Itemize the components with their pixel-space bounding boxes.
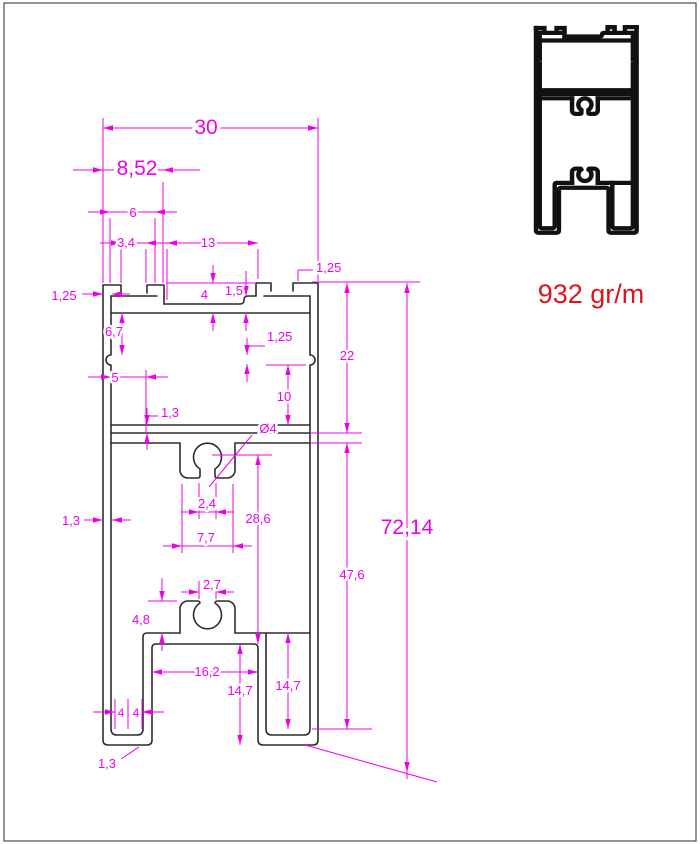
dimension-label: 4,8 bbox=[132, 612, 150, 627]
dimension-arrow bbox=[233, 543, 243, 548]
dimension-arrow bbox=[308, 125, 318, 130]
dimension-width-8-52: 8,52 bbox=[73, 157, 200, 283]
dimension-label: 1,25 bbox=[51, 288, 76, 303]
drawing-page: 308,5263,4131,2541,51,256,751,2510221,3Ø… bbox=[0, 0, 700, 844]
dimension-label: 7,7 bbox=[197, 530, 215, 545]
dimension-label: Ø4 bbox=[259, 421, 276, 436]
dimension-height-14-7-right: 14,7 bbox=[275, 633, 300, 729]
dimension-arrow bbox=[119, 313, 124, 323]
dimension-arrow bbox=[344, 719, 349, 729]
dimension-width-7-7: 7,7 bbox=[163, 484, 252, 553]
dimension-line bbox=[305, 745, 437, 782]
dimension-arrow bbox=[344, 443, 349, 453]
dimension-arrow bbox=[93, 517, 103, 522]
dimension-label: 2,7 bbox=[203, 577, 221, 592]
dimension-arrow bbox=[237, 735, 242, 745]
dimension-arrow bbox=[155, 209, 165, 214]
dimension-arrow bbox=[144, 433, 149, 443]
dimension-arrow bbox=[285, 415, 290, 425]
weight-label: 932 gr/m bbox=[538, 279, 645, 309]
dimension-wall-1-3-left: 1,3 bbox=[62, 513, 131, 528]
dimension-arrow bbox=[344, 283, 349, 293]
dimension-lip-1-25-top-left: 1,25 bbox=[51, 288, 130, 303]
dimension-arrow bbox=[210, 273, 215, 283]
profile-thumbnail bbox=[536, 27, 637, 233]
dimension-label: 22 bbox=[340, 348, 354, 363]
dimension-height-72-14: 72,14 bbox=[305, 283, 437, 782]
dimension-label: 2,4 bbox=[198, 496, 216, 511]
dimension-arrow bbox=[172, 543, 182, 548]
dimension-label: 1,5 bbox=[225, 283, 243, 298]
dimension-arrow bbox=[100, 209, 110, 214]
dimension-line bbox=[209, 435, 252, 487]
dimension-arrow bbox=[404, 283, 409, 293]
dimension-notch-1-25-right: 1,25 bbox=[244, 329, 292, 382]
dimension-arrow bbox=[285, 719, 290, 729]
dimension-label: 4 bbox=[201, 287, 208, 302]
dimension-label: 10 bbox=[277, 389, 291, 404]
dimension-label: 6 bbox=[129, 205, 136, 220]
dimension-line bbox=[121, 747, 139, 759]
dimension-arrow bbox=[404, 762, 409, 772]
dimension-arrow bbox=[152, 669, 162, 674]
dimension-arrow bbox=[144, 415, 149, 425]
dimension-annotations: 308,5263,4131,2541,51,256,751,2510221,3Ø… bbox=[51, 116, 437, 782]
dimension-arrow bbox=[243, 313, 248, 323]
dimension-label: 47,6 bbox=[339, 567, 364, 582]
dimension-label: 72,14 bbox=[381, 516, 434, 539]
dimension-height-14-7-left: 14,7 bbox=[227, 644, 252, 745]
dimension-height-6-7: 6,7 bbox=[105, 313, 125, 355]
dimension-arrow bbox=[93, 167, 103, 172]
dimension-width-5: 5 bbox=[88, 370, 168, 433]
dimension-label: 1,3 bbox=[62, 513, 80, 528]
dimension-arrow bbox=[105, 709, 115, 714]
dimension-hole-diameter-4: Ø4 bbox=[209, 421, 277, 487]
dimension-arrow bbox=[101, 374, 111, 379]
dimension-label: 30 bbox=[194, 116, 217, 139]
dimension-label: 14,7 bbox=[275, 678, 300, 693]
dimension-label: 8,52 bbox=[117, 157, 158, 180]
profile-drawing-canvas: 308,5263,4131,2541,51,256,751,2510221,3Ø… bbox=[0, 0, 700, 844]
dimension-label: 4 bbox=[133, 706, 140, 720]
dimension-arrow bbox=[112, 517, 122, 522]
dimension-label: 1,25 bbox=[267, 329, 292, 344]
dimension-width-16-2: 16,2 bbox=[152, 664, 258, 679]
dimension-lip-1-25-top-right: 1,25 bbox=[298, 260, 341, 281]
dimension-arrow bbox=[159, 591, 164, 601]
dimension-label: 3,4 bbox=[117, 235, 135, 250]
dimension-label: 6,7 bbox=[105, 324, 123, 339]
dimension-label: 14,7 bbox=[227, 683, 252, 698]
dimension-label: 16,2 bbox=[194, 664, 219, 679]
dimension-arrow bbox=[216, 509, 226, 514]
dimension-label: 13 bbox=[201, 235, 215, 250]
dimension-wall-1-3-bottom: 1,3 bbox=[98, 747, 139, 771]
dimension-arrow bbox=[243, 286, 248, 296]
dimension-slot-2-7: 2,7 bbox=[181, 577, 234, 599]
dimension-arrow bbox=[244, 345, 249, 355]
dimension-arrow bbox=[167, 240, 177, 245]
dimension-label: 28,6 bbox=[245, 511, 270, 526]
dimension-arrow bbox=[248, 669, 258, 674]
dimension-arrow bbox=[146, 240, 156, 245]
dimension-arrow bbox=[344, 423, 349, 433]
dimension-width-30: 30 bbox=[103, 116, 318, 283]
dimension-arrow bbox=[237, 644, 242, 654]
dimension-arrow bbox=[146, 374, 156, 379]
dimension-height-22: 22 bbox=[310, 282, 420, 443]
dimension-arrow bbox=[285, 365, 290, 375]
dimension-height-4-8: 4,8 bbox=[132, 578, 177, 651]
dimension-label: 1,3 bbox=[161, 405, 179, 420]
dimension-slot-2-4: 2,4 bbox=[181, 483, 234, 519]
dimension-arrow bbox=[103, 125, 113, 130]
dimension-arrow bbox=[189, 589, 199, 594]
dimension-step-1-5: 1,5 bbox=[225, 271, 249, 331]
dimension-height-47-6: 47,6 bbox=[312, 443, 372, 729]
dimension-label: 1,3 bbox=[98, 756, 116, 771]
dimension-arrow bbox=[159, 633, 164, 643]
dimension-arrow bbox=[248, 240, 258, 245]
dimension-arrow bbox=[285, 633, 290, 643]
dimension-arrow bbox=[93, 291, 103, 296]
dimension-arrow bbox=[255, 455, 260, 465]
dimension-arrow bbox=[119, 345, 124, 355]
dimension-depth-4: 4 bbox=[167, 265, 256, 331]
dimension-label: 1,25 bbox=[316, 260, 341, 275]
dimension-arrow bbox=[244, 364, 249, 374]
dimension-arrow bbox=[163, 167, 173, 172]
dimension-label: 4 bbox=[118, 706, 125, 720]
dimension-height-10: 10 bbox=[266, 365, 306, 425]
dimension-arrow bbox=[210, 313, 215, 323]
dimension-arrow bbox=[255, 634, 260, 644]
dimension-label: 5 bbox=[111, 370, 118, 385]
